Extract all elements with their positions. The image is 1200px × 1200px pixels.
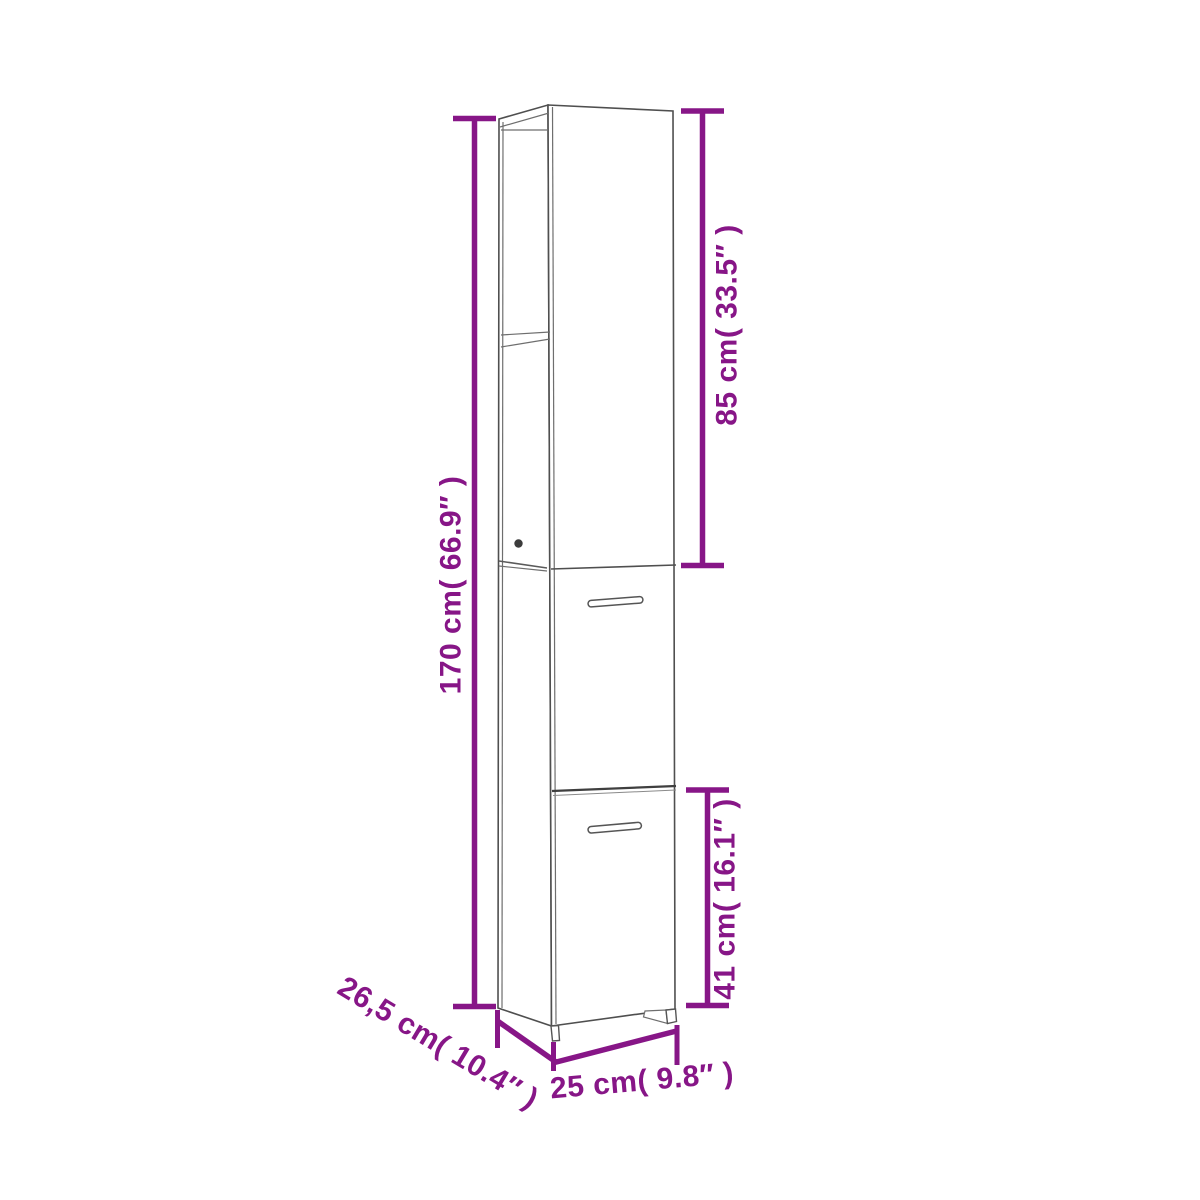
dimension-lower-height: 41 cm( 16.1″ ) <box>686 790 742 1006</box>
dimension-width: 25 cm( 9.8″ ) <box>549 1025 735 1105</box>
product-dimension-diagram: 170 cm( 66.9″ ) 85 cm( 33.5″ ) 41 cm( 16… <box>0 0 1200 1200</box>
cabinet-left-foot <box>551 1026 560 1042</box>
label-upper-height: 85 cm( 33.5″ ) <box>711 224 744 425</box>
dimension-total-height: 170 cm( 66.9″ ) <box>435 119 497 1007</box>
cabinet-right-foot-side <box>644 1010 668 1024</box>
label-width: 25 cm( 9.8″ ) <box>549 1057 735 1106</box>
dimension-line <box>498 1021 557 1062</box>
label-total-height: 170 cm( 66.9″ ) <box>435 476 468 695</box>
dimension-upper-height: 85 cm( 33.5″ ) <box>681 111 744 566</box>
cabinet-drawing <box>498 105 677 1041</box>
dimension-line <box>555 1031 677 1063</box>
cabinet-right-foot <box>666 1009 677 1024</box>
label-lower-height: 41 cm( 16.1″ ) <box>709 798 742 999</box>
cabinet-knob <box>514 539 522 547</box>
diagram-canvas: 170 cm( 66.9″ ) 85 cm( 33.5″ ) 41 cm( 16… <box>0 0 1200 1200</box>
